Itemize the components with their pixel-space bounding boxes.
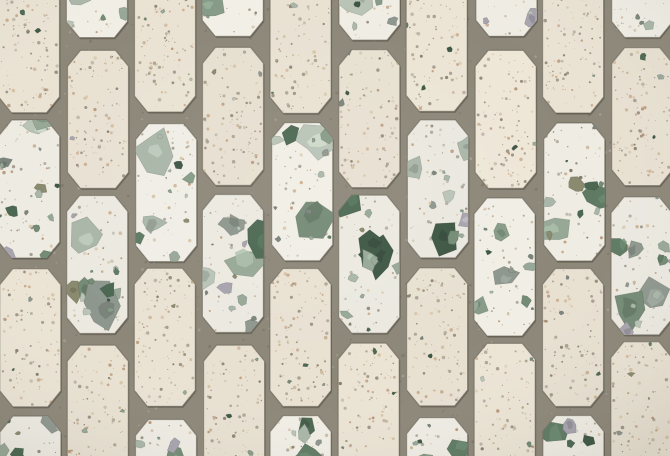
photo-vignette xyxy=(0,0,670,456)
mosaic-canvas xyxy=(0,0,670,456)
terrazzo-picket-mosaic-photo xyxy=(0,0,670,456)
